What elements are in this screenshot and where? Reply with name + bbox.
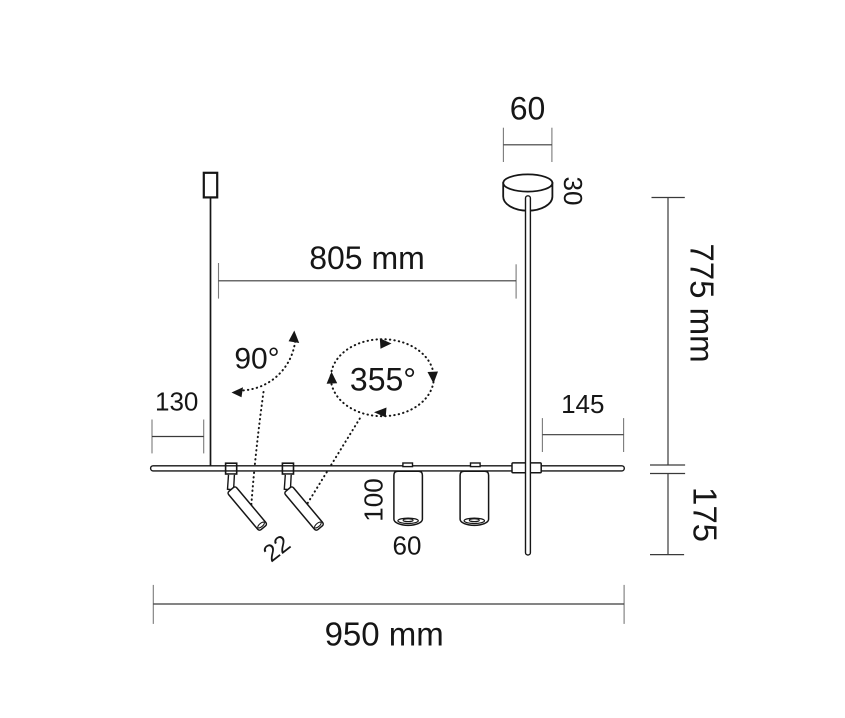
- svg-text:145: 145: [561, 389, 604, 419]
- svg-text:30: 30: [558, 177, 588, 206]
- svg-text:60: 60: [393, 531, 422, 561]
- svg-text:175: 175: [686, 487, 723, 542]
- svg-text:130: 130: [155, 387, 198, 417]
- svg-text:775 mm: 775 mm: [684, 243, 721, 362]
- svg-text:950 mm: 950 mm: [325, 616, 444, 653]
- svg-text:355°: 355°: [350, 362, 416, 398]
- svg-text:90°: 90°: [234, 343, 279, 376]
- svg-text:805 mm: 805 mm: [309, 240, 425, 276]
- svg-text:100: 100: [359, 478, 389, 521]
- svg-text:60: 60: [510, 91, 546, 127]
